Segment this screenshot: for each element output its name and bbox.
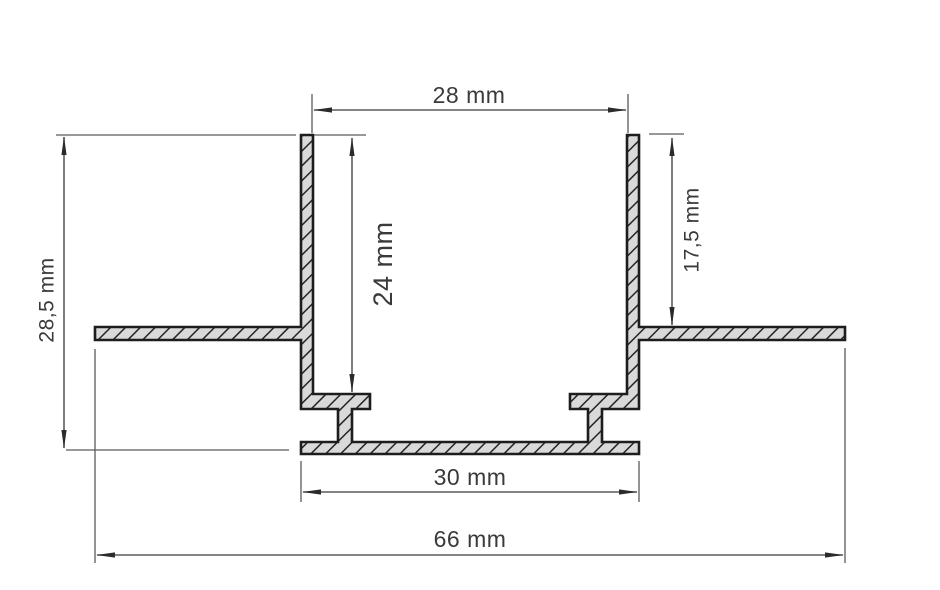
- drawing-canvas: 28 mm 28,5 mm 24 mm 17,5 mm 30 mm 66 mm: [0, 0, 940, 590]
- technical-drawing: 28 mm 28,5 mm 24 mm 17,5 mm 30 mm 66 mm: [0, 0, 940, 590]
- dimension-label-flange-offset: 17,5 mm: [681, 187, 704, 272]
- dimension-base-width: 30 mm: [301, 461, 639, 502]
- dimension-label-top-opening: 28 mm: [433, 82, 506, 108]
- dimension-overall-width: 66 mm: [95, 348, 845, 563]
- dimension-top-opening: 28 mm: [312, 82, 628, 133]
- dimension-overall-height: 28,5 mm: [36, 135, 297, 450]
- dimension-label-base-width: 30 mm: [434, 464, 507, 490]
- profile-cross-section: [95, 135, 845, 454]
- dimension-label-overall-width: 66 mm: [434, 526, 507, 552]
- profile-outline-shape: [95, 135, 845, 454]
- dimension-flange-offset: 17,5 mm: [649, 134, 704, 325]
- dimension-inner-depth: 24 mm: [314, 135, 398, 392]
- dimension-label-overall-height: 28,5 mm: [36, 257, 59, 342]
- dimension-label-inner-depth: 24 mm: [368, 221, 398, 306]
